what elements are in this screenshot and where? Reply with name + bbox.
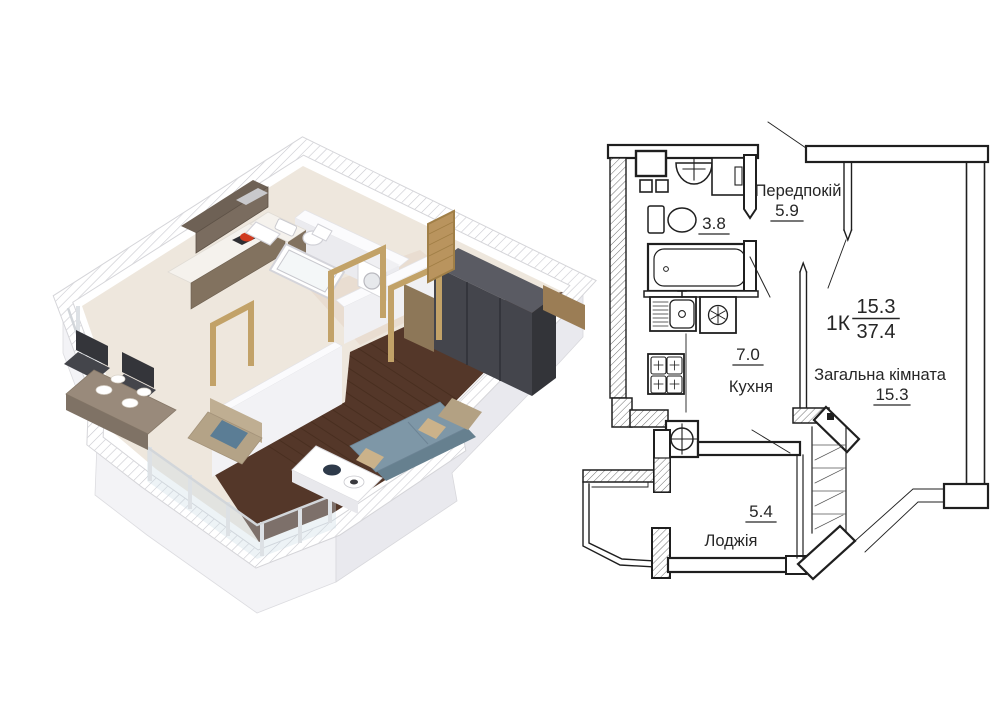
shaft-box-2 [640,180,652,192]
living-area-fraction-num: 15.3 [857,296,896,318]
wall-living-top [806,146,988,162]
apartment-type: 1К [826,312,851,335]
area-living-room: 15.3 [875,385,908,404]
loggia-glazing-ticks [813,445,845,529]
balcony-door-hinge [827,413,834,420]
table-bowl [323,465,341,476]
area-bathroom: 3.8 [702,214,726,233]
area-hallway: 5.9 [775,201,799,220]
label-loggia: Лоджія [705,532,758,550]
partition-kitchen-living [800,263,807,408]
door-swing-living [828,240,846,288]
wall-bay-stub [583,470,656,482]
total-area-fraction-den: 37.4 [857,321,896,343]
area-loggia: 5.4 [749,502,773,521]
pier-living-bottom [944,484,988,508]
balcony-outline-thin [855,489,944,552]
toilet-tank-plan [648,206,664,233]
pier-bay-top-hatch [654,458,670,492]
floor-plan-2d: Передпокій 5.9 3.8 7.0 Кухня 1К 15.3 37.… [583,122,988,579]
washer-door [364,273,380,289]
bathtub-plan [648,244,750,291]
render-3d [63,146,590,655]
entrance-leader [768,122,806,148]
wall-kitchen-bottom-hatch [630,410,668,427]
loggia-angled-parapet [798,526,855,579]
label-kitchen: Кухня [729,378,773,396]
table-plate-center [350,480,358,485]
wall-bath-top [608,145,758,158]
area-kitchen: 7.0 [736,345,760,364]
bay-parapet-inner [589,484,656,561]
wall-kitchen-left-step [612,398,632,427]
shaft-box-3 [656,180,668,192]
door-slat-panel [428,211,454,282]
wall-living-right [967,162,985,484]
sink-basin [670,300,694,328]
floorplan-page: Передпокій 5.9 3.8 7.0 Кухня 1К 15.3 37.… [0,0,1000,704]
shaft-hatch-topleft [610,158,626,398]
washer-plan-detail [735,167,742,185]
toilet-bowl-plan [668,208,696,232]
floorplan-graphic: Передпокій 5.9 3.8 7.0 Кухня 1К 15.3 37.… [0,0,1000,704]
wall-kitchen-loggia [698,442,800,455]
shaft-box-1 [636,151,666,176]
plan-labels: Передпокій 5.9 3.8 7.0 Кухня 1К 15.3 37.… [699,182,947,550]
loggia-parapet-bottom [668,558,790,572]
label-living-room: Загальна кімната [814,366,947,384]
partition-hall-living [844,162,852,240]
label-hallway: Передпокій [755,182,842,200]
bay-parapet-outer [583,482,656,567]
